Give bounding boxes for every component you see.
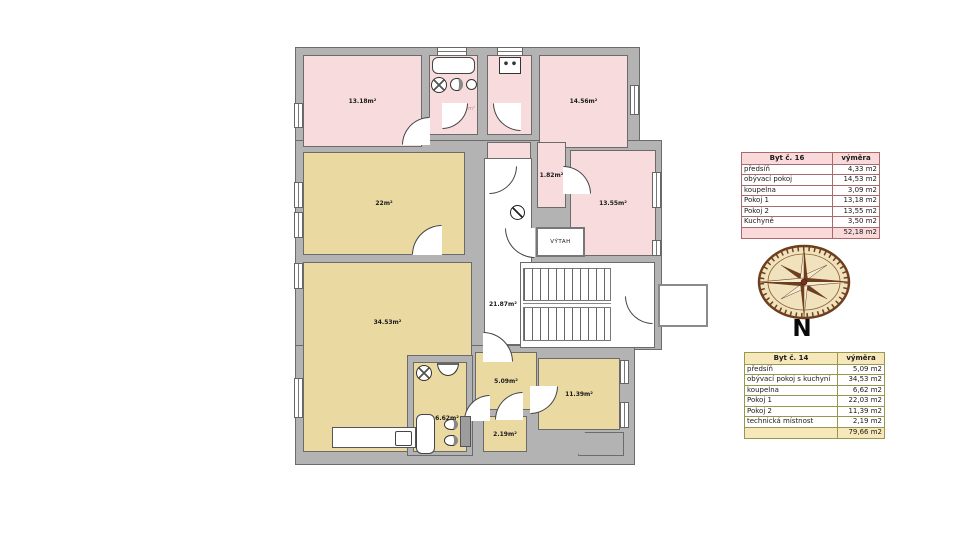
table-cell-value: 5,09 m2 xyxy=(838,365,884,375)
table-cell-value: 22,03 m2 xyxy=(838,396,884,406)
window xyxy=(620,402,629,428)
north-label: N xyxy=(760,316,844,342)
table-total-spacer xyxy=(742,228,833,239)
table-cell-value: 4,33 m2 xyxy=(833,165,879,175)
table-total-value: 79,66 m2 xyxy=(838,428,884,439)
window xyxy=(652,172,661,208)
table-cell-name: Pokoj 1 xyxy=(745,396,838,406)
stair-divider xyxy=(523,303,611,304)
table-row: koupelna6,62 m2 xyxy=(745,386,884,397)
table-row: Pokoj 213,55 m2 xyxy=(742,207,879,218)
room-area-label: 22m² xyxy=(375,200,392,207)
table-col-vymera: výměra xyxy=(838,353,884,364)
toilet-icon xyxy=(450,78,463,91)
table-total-row: 52,18 m2 xyxy=(742,227,879,239)
room-predsin2-byt16: 1.82m² xyxy=(537,142,566,208)
table-cell-name: předsíň xyxy=(742,165,833,175)
table-cell-name: koupelna xyxy=(745,386,838,396)
window xyxy=(294,378,303,418)
room-area-label: 1.82m² xyxy=(540,172,564,179)
table-row: obývací pokoj s kuchyní34,53 m2 xyxy=(745,375,884,386)
room-area-label: 5.09m² xyxy=(494,378,518,385)
kitchen-counter xyxy=(332,427,416,448)
toilet-icon xyxy=(444,435,458,446)
table-title: Byt č. 16 xyxy=(742,153,833,164)
window xyxy=(620,360,629,384)
table-cell-value: 3,09 m2 xyxy=(833,186,879,196)
room-area-label: 11.39m² xyxy=(565,391,593,398)
table-row: Pokoj 211,39 m2 xyxy=(745,407,884,418)
window xyxy=(294,103,303,128)
table-rows: předsíň5,09 m2obývací pokoj s kuchyní34,… xyxy=(745,365,884,428)
stair-flight-lower xyxy=(523,307,611,341)
table-row: Kuchyně3,50 m2 xyxy=(742,217,879,228)
table-cell-name: obývací pokoj s kuchyní xyxy=(745,375,838,385)
table-cell-value: 11,39 m2 xyxy=(838,407,884,417)
table-row: předsíň5,09 m2 xyxy=(745,365,884,376)
window xyxy=(294,212,303,238)
table-cell-name: technická místnost xyxy=(745,417,838,427)
window xyxy=(652,240,661,256)
room-technicka-byt14: 2.19m² xyxy=(483,416,527,452)
room-area-label: 14.56m² xyxy=(570,98,598,105)
window xyxy=(497,47,523,56)
stove-icon xyxy=(499,57,521,74)
balcony xyxy=(658,284,708,327)
table-cell-value: 13,18 m2 xyxy=(833,196,879,206)
floor-plan: 13.18m² 3.09m² 3.50m² 14.56m² 2.51m² 1.8… xyxy=(290,45,720,475)
washing-machine-icon xyxy=(416,365,432,381)
table-cell-name: Pokoj 1 xyxy=(742,196,833,206)
window xyxy=(294,182,303,208)
table-row: předsíň4,33 m2 xyxy=(742,165,879,176)
window xyxy=(437,47,467,56)
table-cell-name: Pokoj 2 xyxy=(742,207,833,217)
room-area-label: 2.19m² xyxy=(493,431,517,438)
elevator: VÝTAH xyxy=(536,227,585,257)
table-header: Byt č. 16 výměra xyxy=(742,153,879,165)
room-area-label: 13.18m² xyxy=(349,98,377,105)
table-cell-value: 2,19 m2 xyxy=(838,417,884,427)
bathtub-icon xyxy=(432,57,475,74)
terrace xyxy=(578,432,624,456)
room-area-label: 13.55m² xyxy=(599,200,627,207)
washing-machine-icon xyxy=(431,77,447,93)
kitchen-sink-icon xyxy=(395,431,412,446)
window xyxy=(630,85,639,115)
table-cell-name: koupelna xyxy=(742,186,833,196)
room-area-label: 34.53m² xyxy=(374,319,402,326)
room-obyvaci-byt16: 14.56m² xyxy=(539,55,628,148)
table-byt14: Byt č. 14 výměra předsíň5,09 m2obývací p… xyxy=(744,352,885,439)
table-row: Pokoj 122,03 m2 xyxy=(745,396,884,407)
corridor-area-label: 21.87m² xyxy=(489,301,517,308)
table-total-row: 79,66 m2 xyxy=(745,427,884,439)
table-cell-name: Pokoj 2 xyxy=(745,407,838,417)
table-row: technická místnost2,19 m2 xyxy=(745,417,884,428)
table-row: koupelna3,09 m2 xyxy=(742,186,879,197)
page-canvas: 13.18m² 3.09m² 3.50m² 14.56m² 2.51m² 1.8… xyxy=(0,0,960,540)
cabinet-icon xyxy=(460,416,471,447)
table-cell-name: předsíň xyxy=(745,365,838,375)
toilet-icon xyxy=(444,419,458,430)
table-row: Pokoj 113,18 m2 xyxy=(742,196,879,207)
table-cell-value: 3,50 m2 xyxy=(833,217,879,227)
table-cell-name: obývací pokoj xyxy=(742,175,833,185)
table-cell-value: 14,53 m2 xyxy=(833,175,879,185)
table-cell-name: Kuchyně xyxy=(742,217,833,227)
table-header: Byt č. 14 výměra xyxy=(745,353,884,365)
table-title: Byt č. 14 xyxy=(745,353,838,364)
table-rows: předsíň4,33 m2obývací pokoj14,53 m2koupe… xyxy=(742,165,879,228)
table-total-spacer xyxy=(745,428,838,439)
stair-flight-upper xyxy=(523,268,611,301)
table-cell-value: 34,53 m2 xyxy=(838,375,884,385)
bathtub-icon xyxy=(416,414,435,454)
table-col-vymera: výměra xyxy=(833,153,879,164)
window xyxy=(294,263,303,289)
table-cell-value: 6,62 m2 xyxy=(838,386,884,396)
table-total-value: 52,18 m2 xyxy=(833,228,879,239)
elevator-label: VÝTAH xyxy=(550,239,570,245)
water-heater-icon xyxy=(510,205,525,220)
compass-rose xyxy=(752,242,856,326)
sink-icon xyxy=(466,79,477,90)
table-cell-value: 13,55 m2 xyxy=(833,207,879,217)
table-byt16: Byt č. 16 výměra předsíň4,33 m2obývací p… xyxy=(741,152,880,239)
table-row: obývací pokoj14,53 m2 xyxy=(742,175,879,186)
